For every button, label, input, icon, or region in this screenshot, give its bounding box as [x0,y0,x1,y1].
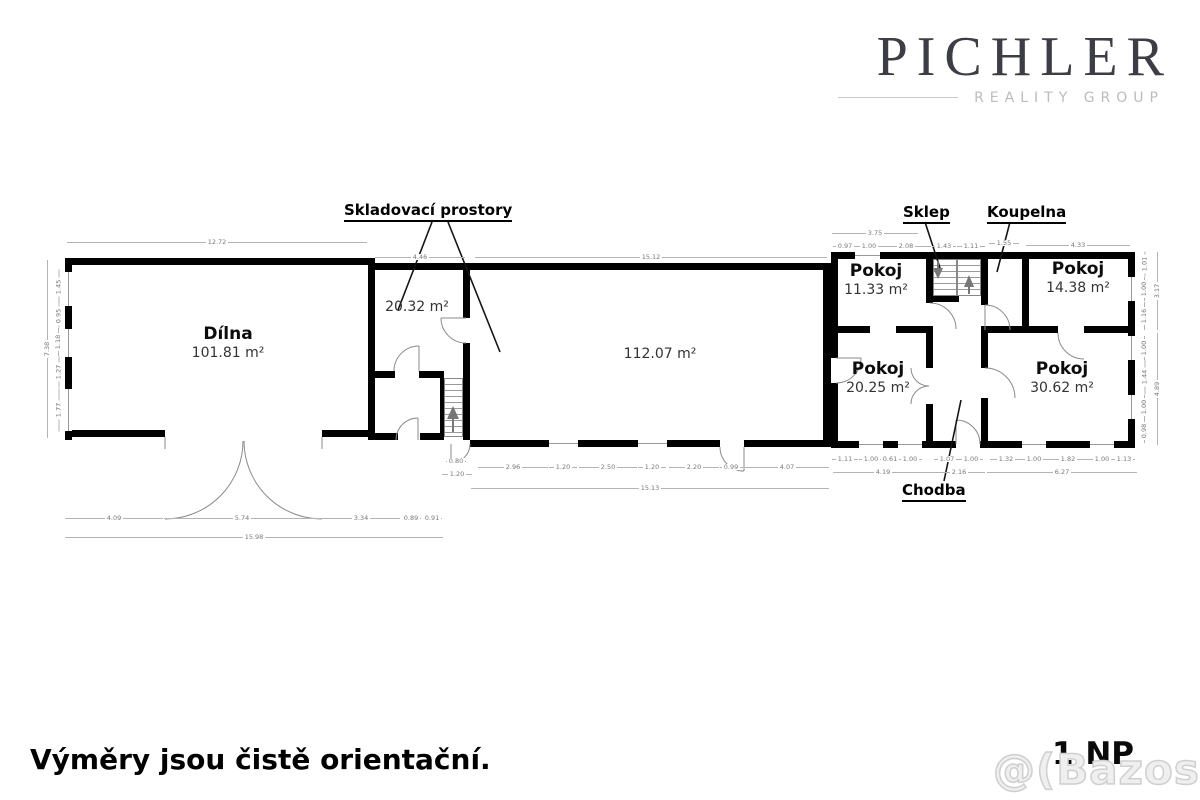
dimension-label: 1.00 [1139,395,1149,419]
dimension-label: 0.99 [720,462,743,472]
dimension-value: 1.18 [55,333,62,351]
dimension-value: 4.09 [105,515,123,522]
dimension-value: 15.13 [639,485,662,492]
dimension-value: 12.72 [206,239,229,246]
dimension-label: 1.20 [442,469,472,479]
dimension-label: 1.13 [1113,454,1135,464]
dimension-value: 0.80 [447,458,465,465]
dimension-value: 3.34 [352,515,370,522]
dimension-label: 1.16 [1139,302,1149,330]
dimension-value: 4.33 [1069,242,1087,249]
dimension-value: 1.13 [1115,456,1133,463]
dimension-value: 4.07 [778,464,796,471]
dimension-value: 1.00 [901,456,919,463]
dimension-value: 2.96 [504,464,522,471]
dimension-label: 1.07 [934,454,960,464]
dimension-label: 1.45 [53,270,63,305]
dimension-label: 1.82 [1046,454,1090,464]
dimension-value: 5.74 [233,515,251,522]
dimension-label: 1.77 [53,389,63,432]
dimension-value: 1.00 [1141,280,1148,298]
dimension-value: 1.45 [55,278,62,296]
dimension-value: 1.55 [995,240,1013,247]
dimension-label: 1.32 [990,454,1022,464]
dimension-value: 1.00 [862,456,880,463]
dimension-label: 4.19 [833,467,933,477]
dimension-value: 1.00 [962,456,980,463]
dimension-value: 4.89 [1154,380,1161,398]
dimension-value: 1.07 [938,456,956,463]
dimension-value: 4.19 [874,469,892,476]
floor-plan-page: { "brand": {"name": "PICHLER", "tagline"… [0,0,1200,800]
dimension-value: 1.20 [554,464,572,471]
dimension-label: 0.95 [53,305,63,328]
dimension-label: 3.17 [1152,252,1162,330]
dimension-value: 1.00 [1093,456,1111,463]
dimension-value: 0.95 [55,307,62,325]
dimension-label: 1.00 [1139,336,1149,360]
dimension-label: 4.89 [1152,333,1162,445]
logo-divider-line [838,97,958,98]
dimension-label: 1.00 [1139,277,1149,301]
dimension-labels: 12.724.4615.123.750.971.002.081.431.111.… [0,0,1200,800]
dimension-value: 1.00 [1141,398,1148,416]
dimension-value: 0.89 [402,515,420,522]
dimension-value: 2.08 [897,243,915,250]
dimension-value: 15.98 [243,534,266,541]
dimension-label: 1.43 [932,241,956,251]
dimension-label: 7.38 [42,260,52,438]
dimension-value: 0.61 [881,456,899,463]
dimension-label: 3.34 [322,513,400,523]
dimension-label: 4.07 [745,462,829,472]
dimension-label: 0.98 [1139,419,1149,443]
dimension-value: 1.00 [1141,339,1148,357]
bazos-watermark: @(Bazos.cz [993,745,1200,794]
dimension-label: 1.00 [898,454,922,464]
dimension-label: 0.61 [883,454,897,464]
brand-logo: PICHLER REALITY GROUP [838,28,1164,106]
dimension-value: 1.27 [55,363,62,381]
brand-name: PICHLER [838,28,1173,87]
dimension-label: 6.27 [987,467,1137,477]
dimension-value: 1.82 [1059,456,1077,463]
dimension-value: 1.11 [962,243,980,250]
dimension-label: 4.46 [375,252,465,262]
dimension-value: 3.75 [866,230,884,237]
dimension-label: 15.98 [65,532,443,542]
dimension-value: 6.27 [1053,469,1071,476]
dimension-value: 1.11 [836,456,854,463]
dimension-label: 1.00 [959,454,983,464]
dimension-value: 0.91 [423,515,441,522]
label-cellar: Sklep [903,203,950,224]
dimension-label: 1.44 [1139,360,1149,395]
dimension-label: 1.55 [989,238,1019,248]
dimension-label: 2.16 [933,467,985,477]
dimension-label: 1.00 [1090,454,1114,464]
brand-tagline-row: REALITY GROUP [838,90,1164,106]
dimension-label: 1.00 [1022,454,1046,464]
brand-tagline: REALITY GROUP [974,90,1164,106]
dimension-label: 2.20 [669,462,719,472]
dimension-label: 12.72 [67,237,367,247]
dimension-label: 1.20 [549,462,577,472]
label-bathroom: Koupelna [987,203,1066,224]
dimension-label: 1.27 [53,357,63,388]
dimension-label: 0.91 [423,513,442,523]
dimension-label: 15.12 [475,252,827,262]
dimension-label: 1.18 [53,328,63,356]
dimension-label: 1.00 [857,241,881,251]
dimension-label: 2.08 [881,241,931,251]
dimension-label: 0.97 [833,241,857,251]
dimension-label: 2.96 [478,462,548,472]
dimension-value: 2.20 [685,464,703,471]
dimension-value: 15.12 [640,254,663,261]
dimension-label: 1.11 [832,454,858,464]
dimension-value: 1.01 [1141,255,1148,273]
dimension-value: 0.98 [1141,422,1148,440]
dimension-value: 2.50 [599,464,617,471]
dimension-label: 3.75 [832,228,918,238]
dimension-value: 1.77 [55,401,62,419]
dimension-label: 1.00 [859,454,883,464]
dimension-label: 2.50 [579,462,637,472]
dimension-label: 1.20 [638,462,666,472]
dimension-value: 1.32 [997,456,1015,463]
dimension-value: 1.16 [1141,307,1148,325]
dimension-value: 1.20 [448,471,466,478]
dimension-value: 3.17 [1154,282,1161,300]
dimension-label: 1.01 [1139,252,1149,277]
dimension-value: 0.99 [722,464,740,471]
dimension-value: 4.46 [411,254,429,261]
label-storage-rooms: Skladovací prostory [344,201,512,222]
dimension-label: 0.80 [446,456,466,466]
disclaimer-note: Výměry jsou čistě orientační. [30,743,491,776]
label-hallway: Chodba [902,481,966,502]
dimension-value: 2.16 [950,469,968,476]
dimension-label: 4.33 [1026,240,1130,250]
dimension-value: 1.43 [935,243,953,250]
dimension-value: 1.00 [860,243,878,250]
dimension-value: 0.97 [836,243,854,250]
dimension-label: 0.89 [402,513,421,523]
dimension-value: 7.38 [44,340,51,358]
dimension-label: 5.74 [164,513,321,523]
dimension-label: 1.11 [957,241,985,251]
dimension-label: 15.13 [471,483,829,493]
dimension-value: 1.00 [1025,456,1043,463]
dimension-label: 4.09 [65,513,163,523]
dimension-value: 1.20 [643,464,661,471]
dimension-value: 1.44 [1141,368,1148,386]
